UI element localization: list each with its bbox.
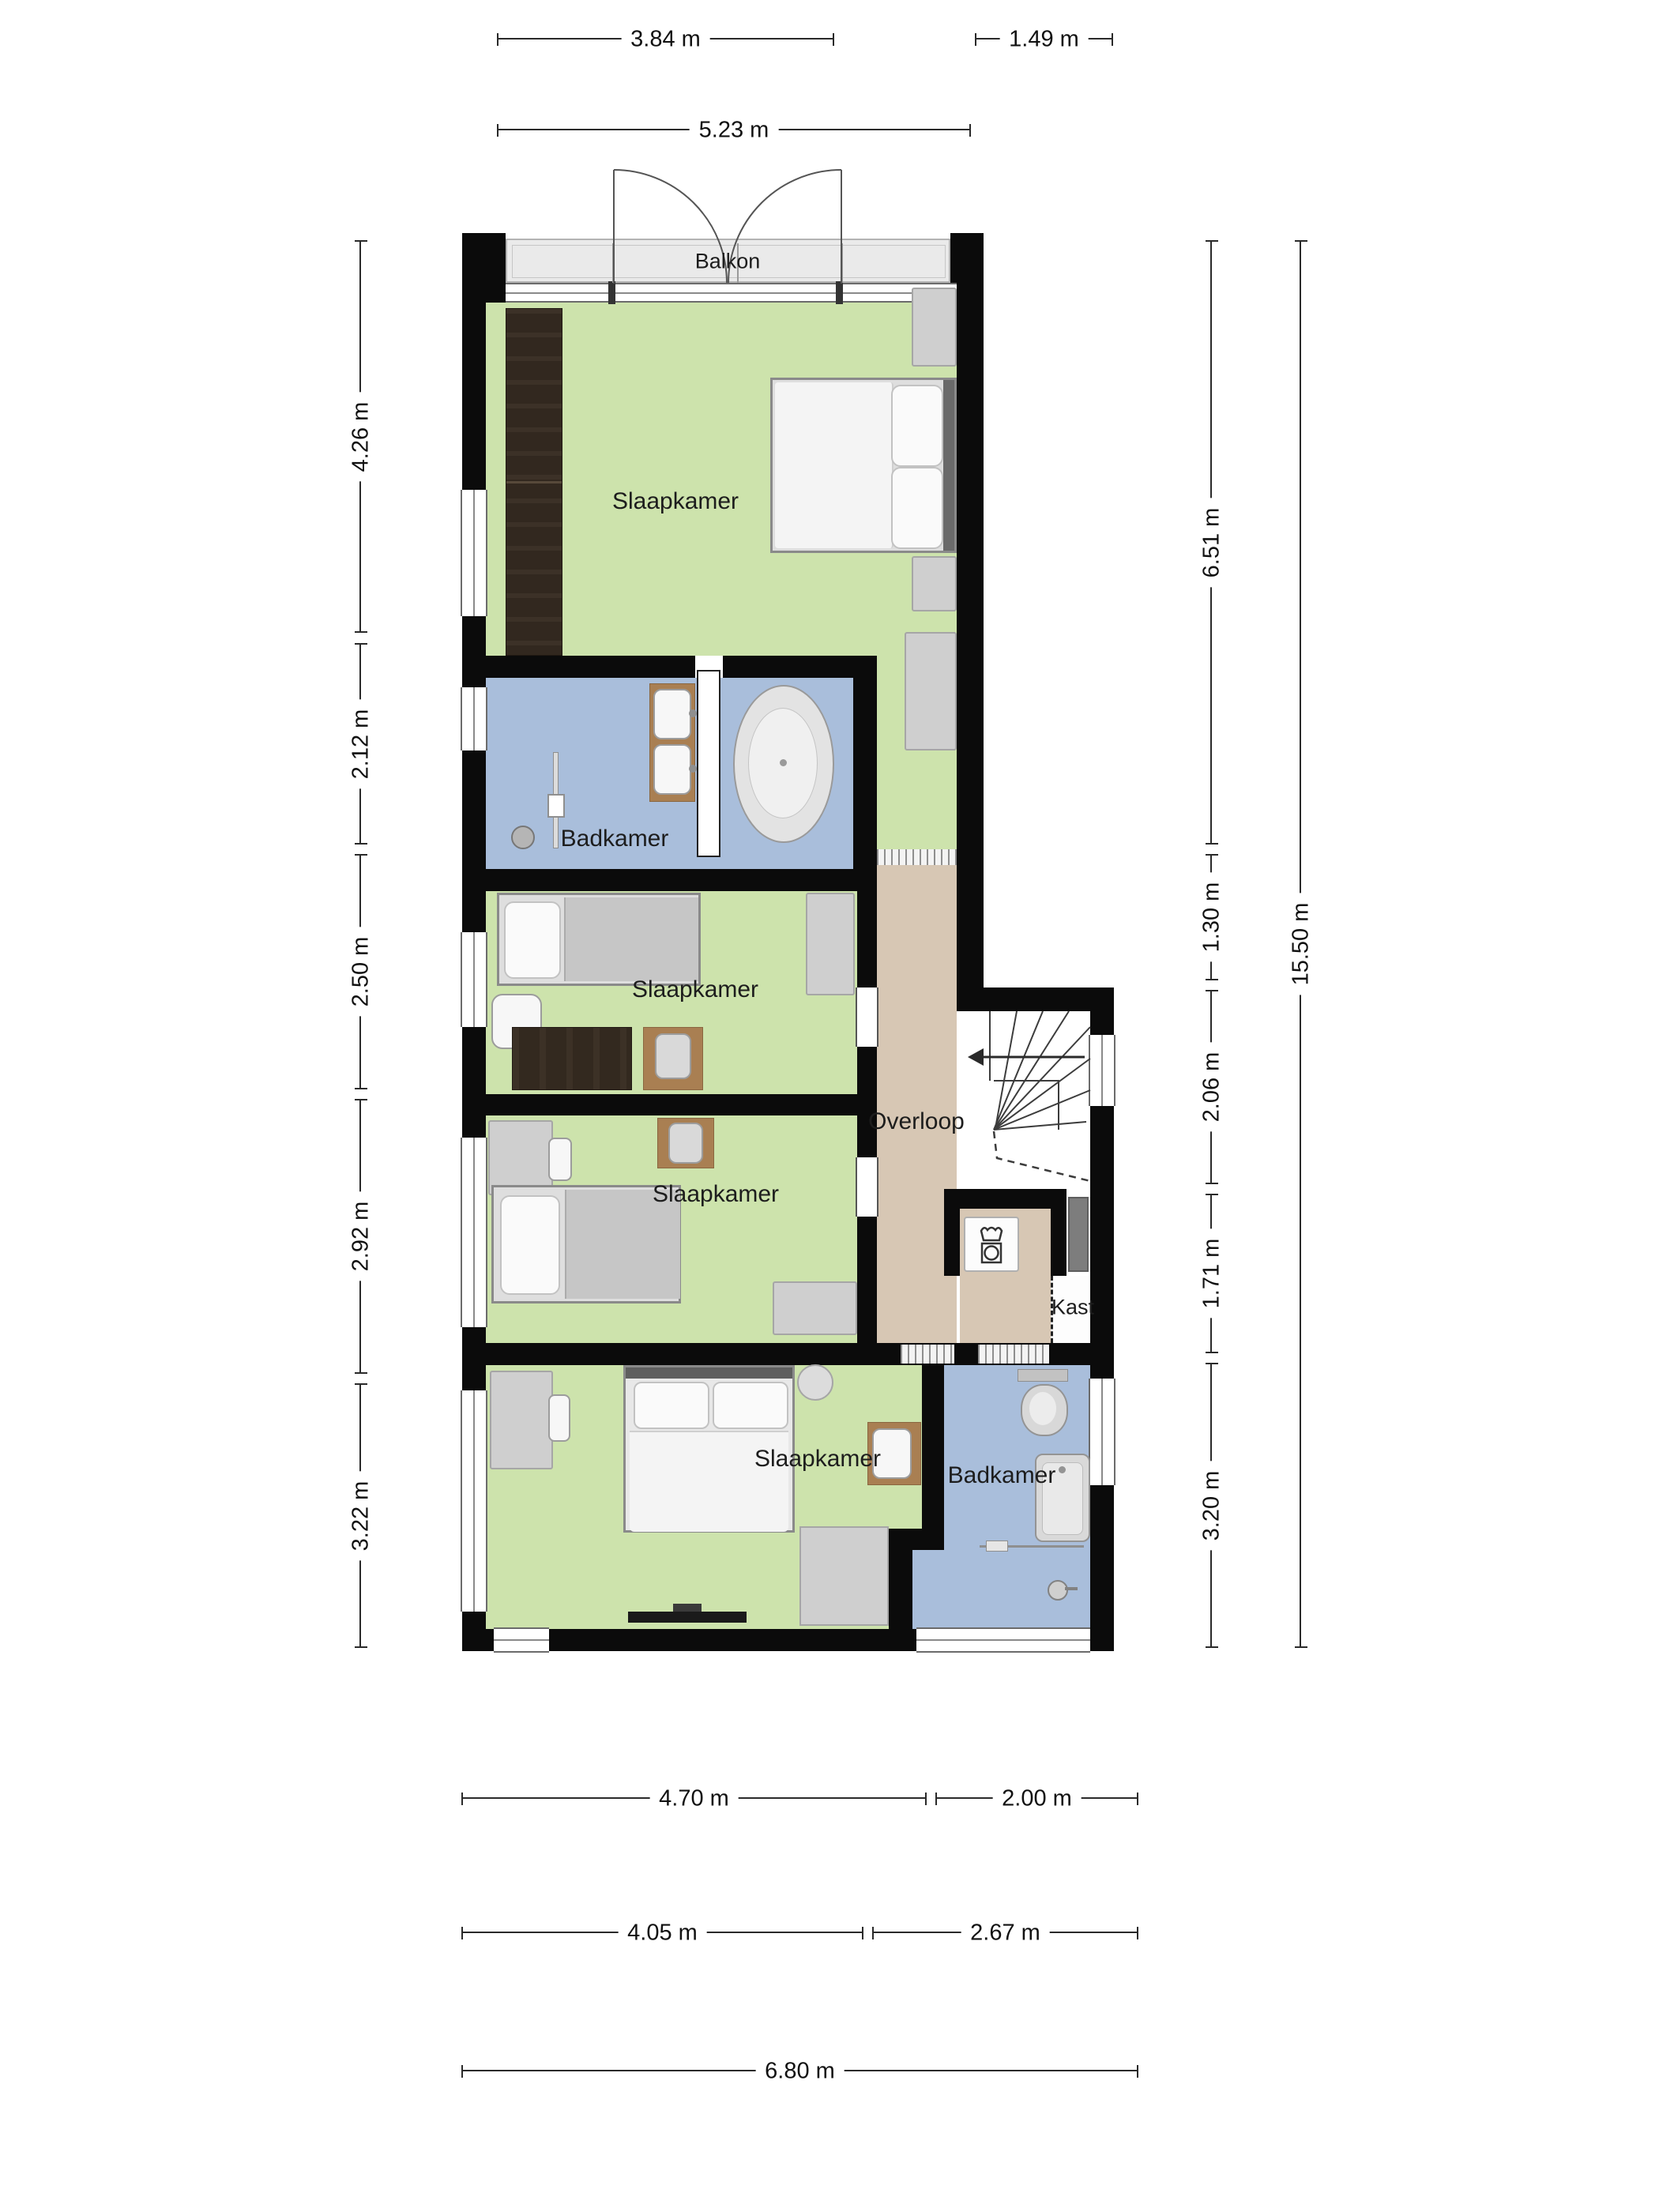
- cabinet-icon: [773, 1281, 857, 1335]
- wall-bathroom1-right: [853, 656, 877, 891]
- dimension-label: 5.23 m: [690, 118, 779, 144]
- room-label-badkamer1: Badkamer: [561, 826, 669, 852]
- door-overloop-bathroom2: [978, 1345, 1049, 1364]
- dimension-label: 2.67 m: [961, 1920, 1050, 1947]
- wall-corner-topleft: [462, 233, 506, 303]
- dim-bottom-405: 4.05 m: [462, 1932, 863, 1933]
- toilet-icon: [1018, 1369, 1068, 1382]
- wall-bathroom1-bottom: [462, 869, 877, 891]
- dim-right-206: 2.06 m: [1210, 991, 1212, 1183]
- door-bedroom2: [856, 987, 878, 1047]
- dim-bottom-200: 2.00 m: [936, 1797, 1138, 1799]
- dimension-label: 1.30 m: [1199, 873, 1225, 962]
- dimension-label: 15.50 m: [1288, 893, 1315, 995]
- window-icon: [1089, 1035, 1115, 1106]
- dimension-label: 6.80 m: [755, 2059, 845, 2085]
- nightstand-icon: [912, 288, 957, 367]
- dimension-label: 1.49 m: [999, 27, 1089, 53]
- dim-left-212: 2.12 m: [359, 644, 361, 844]
- washing-machine-icon: [964, 1217, 1019, 1272]
- double-bed-icon: [770, 378, 957, 553]
- desk-icon: [490, 1371, 553, 1469]
- window-icon: [916, 1627, 1090, 1653]
- single-bed-icon: [497, 893, 701, 986]
- faucet-icon: [689, 765, 697, 773]
- tv-stand: [673, 1604, 702, 1612]
- wall-bed2-bed3: [486, 1094, 857, 1115]
- dim-left-250: 2.50 m: [359, 855, 361, 1089]
- bed-headboard: [626, 1367, 792, 1379]
- bed-pillow: [713, 1382, 788, 1429]
- room-label-kast: Kast: [1051, 1296, 1094, 1320]
- threshold-bedroom1-overloop: [877, 849, 957, 865]
- dim-right-320: 3.20 m: [1210, 1364, 1212, 1647]
- sink-icon: [653, 744, 691, 795]
- wall-bathroom1-top-b: [723, 656, 853, 678]
- dim-right-171: 1.71 m: [1210, 1194, 1212, 1352]
- dim-bottom-470: 4.70 m: [462, 1797, 926, 1799]
- dimension-label: 3.20 m: [1199, 1461, 1225, 1550]
- dimension-label: 2.92 m: [348, 1192, 374, 1281]
- wardrobe-icon: [506, 308, 562, 656]
- cabinet-icon: [806, 893, 855, 995]
- dim-left-292: 2.92 m: [359, 1100, 361, 1373]
- staircase-icon: [960, 1011, 1090, 1189]
- dim-right-651: 6.51 m: [1210, 241, 1212, 844]
- sink-icon: [655, 1033, 691, 1079]
- door-bathroom1-leaf: [697, 670, 720, 857]
- dimension-label: 2.00 m: [992, 1786, 1082, 1812]
- desk-icon: [488, 1120, 553, 1195]
- window-icon: [494, 1627, 549, 1653]
- dim-top-384: 3.84 m: [498, 38, 833, 39]
- sink-icon: [653, 689, 691, 739]
- door-overloop-bedroom4: [901, 1345, 954, 1364]
- bathtub-oval-icon: [733, 685, 834, 843]
- chair-icon: [548, 1394, 570, 1442]
- shower-valve: [547, 794, 565, 818]
- window-icon: [461, 1138, 487, 1327]
- dim-right-130: 1.30 m: [1210, 855, 1212, 980]
- wall-bathroom1-top-a: [486, 656, 695, 678]
- room-label-badkamer2: Badkamer: [948, 1462, 1056, 1489]
- bed-headboard: [943, 380, 954, 551]
- stool-icon: [797, 1364, 833, 1401]
- shower-icon: [511, 826, 535, 849]
- dimension-label: 1.71 m: [1199, 1229, 1225, 1319]
- faucet-icon: [689, 709, 697, 717]
- sink-icon: [668, 1123, 703, 1164]
- faucet-spout: [1065, 1587, 1078, 1590]
- dimension-label: 4.05 m: [618, 1920, 707, 1947]
- room-label-balkon: Balkon: [695, 250, 761, 274]
- balcony-window-band: [506, 283, 957, 303]
- dimension-label: 2.12 m: [348, 699, 374, 788]
- tv-icon: [628, 1612, 747, 1623]
- window-icon: [461, 490, 487, 616]
- window-icon: [461, 932, 487, 1027]
- window-icon: [461, 687, 487, 750]
- room-label-slaapkamer1: Slaapkamer: [612, 488, 739, 515]
- dimension-label: 4.26 m: [348, 392, 374, 481]
- dimension-label: 3.22 m: [348, 1471, 374, 1560]
- dim-bottom-267: 2.67 m: [873, 1932, 1138, 1933]
- towel-icon: [986, 1540, 1008, 1552]
- dim-top-149: 1.49 m: [976, 38, 1112, 39]
- faucet-icon: [1048, 1580, 1068, 1601]
- bed-pillow: [500, 1195, 560, 1295]
- bed-pillow: [891, 385, 943, 467]
- window-icon: [461, 1390, 487, 1612]
- room-label-slaapkamer4: Slaapkamer: [754, 1446, 881, 1473]
- door-bedroom3: [856, 1157, 878, 1217]
- desk-icon: [512, 1027, 632, 1090]
- wall-bath2-divider-upper: [922, 1365, 944, 1529]
- wall-bath2-jog: [889, 1529, 944, 1550]
- dresser-icon: [905, 632, 957, 750]
- chair-icon: [548, 1138, 572, 1181]
- room-label-slaapkamer2: Slaapkamer: [632, 976, 758, 1003]
- bed-pillow: [634, 1382, 709, 1429]
- dim-left-426: 4.26 m: [359, 241, 361, 632]
- wall-right-main: [957, 237, 984, 1011]
- wall-bath2-divider-lower: [889, 1550, 912, 1629]
- dim-top-523: 5.23 m: [498, 129, 970, 130]
- dimension-label: 2.50 m: [348, 927, 374, 1017]
- dim-right-1550: 15.50 m: [1300, 241, 1301, 1647]
- rug-icon: [799, 1526, 889, 1626]
- dim-left-322: 3.22 m: [359, 1384, 361, 1647]
- floor-plan-canvas: Balkon Slaapkamer Badkamer Slaapkamer Sl…: [0, 0, 1659, 2212]
- wall-nook-top: [944, 1189, 1063, 1209]
- room-label-overloop: Overloop: [868, 1108, 965, 1135]
- dim-bottom-680: 6.80 m: [462, 2070, 1138, 2071]
- dimension-label: 3.84 m: [621, 27, 710, 53]
- dimension-label: 2.06 m: [1199, 1043, 1225, 1132]
- bed-pillow: [891, 467, 943, 549]
- dimension-label: 4.70 m: [649, 1786, 739, 1812]
- nightstand-icon: [912, 556, 957, 611]
- wall-kast-separator: [1051, 1189, 1066, 1276]
- wall-nook-left: [944, 1189, 960, 1276]
- toilet-bowl: [1021, 1384, 1068, 1436]
- bed-pillow: [504, 901, 561, 979]
- dimension-label: 6.51 m: [1199, 498, 1225, 587]
- kast-gray-panel: [1068, 1197, 1089, 1272]
- bed-blanket: [564, 897, 698, 981]
- bed-duvet: [775, 382, 893, 548]
- window-icon: [1089, 1379, 1115, 1485]
- room-label-slaapkamer3: Slaapkamer: [653, 1181, 779, 1208]
